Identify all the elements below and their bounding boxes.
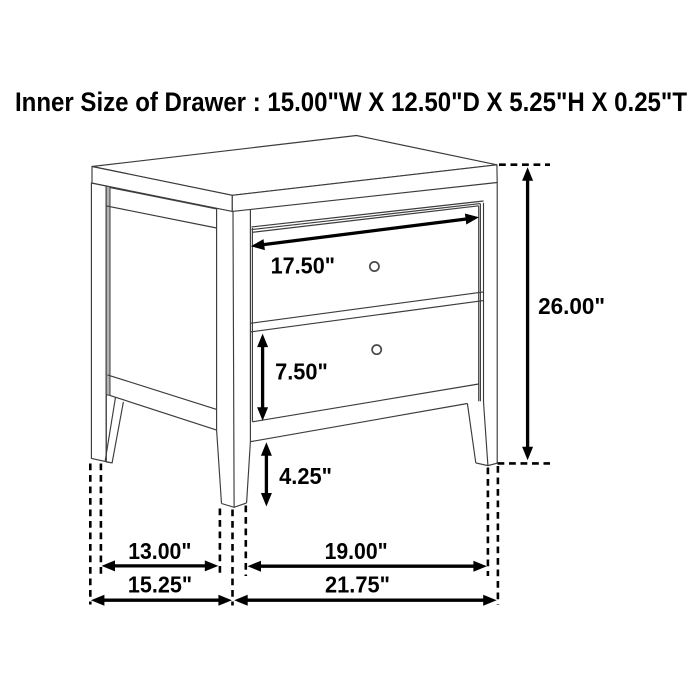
svg-text:4.25": 4.25" <box>279 463 332 489</box>
svg-text:13.00": 13.00" <box>128 538 191 564</box>
svg-text:15.25": 15.25" <box>128 571 192 597</box>
svg-text:19.00": 19.00" <box>325 538 388 564</box>
svg-text:21.75": 21.75" <box>325 571 390 597</box>
svg-text:26.00": 26.00" <box>538 293 605 319</box>
svg-text:17.50": 17.50" <box>271 253 335 279</box>
svg-text:7.50": 7.50" <box>275 358 328 384</box>
svg-text:Inner Size of Drawer : 15.00"W: Inner Size of Drawer : 15.00"W X 12.50"D… <box>15 87 687 117</box>
